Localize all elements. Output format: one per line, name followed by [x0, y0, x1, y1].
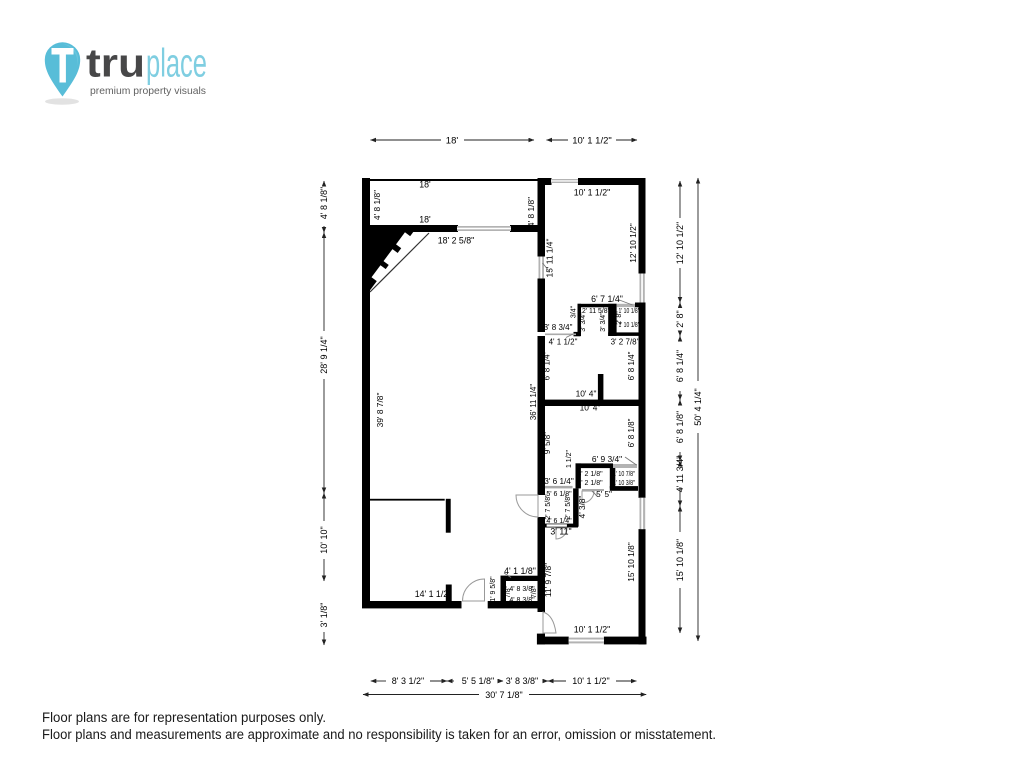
svg-text:4' 3/8": 4' 3/8": [578, 496, 587, 519]
svg-text:1' 10 1/8": 1' 10 1/8": [619, 322, 640, 329]
svg-text:10' 4": 10' 4": [580, 403, 601, 413]
svg-text:3' 6 1/4": 3' 6 1/4": [544, 477, 574, 486]
svg-text:6' 9 3/4": 6' 9 3/4": [592, 454, 622, 464]
svg-text:3' 11": 3' 11": [550, 527, 571, 537]
svg-text:6' 7 1/4": 6' 7 1/4": [591, 294, 623, 304]
svg-text:15' 11 1/4": 15' 11 1/4": [545, 239, 555, 278]
svg-text:15' 10 1/8": 15' 10 1/8": [675, 539, 685, 581]
svg-text:7/8": 7/8": [531, 585, 538, 598]
svg-text:11' 9 7/8": 11' 9 7/8": [543, 563, 553, 597]
svg-text:6' 8 1/4": 6' 8 1/4": [675, 350, 685, 382]
svg-text:4' 8 1/8": 4' 8 1/8": [319, 187, 329, 219]
svg-text:3' 2 7/8": 3' 2 7/8": [611, 338, 640, 347]
svg-text:6' 8 1/8": 6' 8 1/8": [675, 411, 685, 443]
svg-text:10' 4": 10' 4": [576, 389, 597, 399]
svg-text:2' 7 5/8": 2' 7 5/8": [545, 494, 552, 520]
svg-text:3/4": 3/4": [571, 305, 578, 318]
svg-text:7/8": 7/8": [505, 585, 512, 598]
svg-text:3' 3/4": 3' 3/4": [600, 312, 607, 332]
svg-text:4' 6 1/4": 4' 6 1/4": [546, 518, 572, 525]
svg-text:4' 1 1/2": 4' 1 1/2": [549, 338, 578, 347]
svg-text:6' 8 1/4": 6' 8 1/4": [627, 351, 636, 380]
svg-text:1' 10 1/8": 1' 10 1/8": [619, 308, 640, 315]
svg-text:5' 5 1/8": 5' 5 1/8": [462, 676, 494, 686]
svg-text:18': 18': [419, 215, 431, 225]
svg-text:6' 8 1/4": 6' 8 1/4": [543, 351, 552, 380]
svg-text:1' 2 1/8": 1' 2 1/8": [577, 480, 603, 487]
svg-text:1' 10 7/8": 1' 10 7/8": [613, 471, 635, 478]
svg-text:10' 1 1/2": 10' 1 1/2": [574, 625, 611, 635]
svg-text:4' 8 1/8": 4' 8 1/8": [526, 197, 536, 227]
svg-text:2' 8": 2' 8": [675, 310, 685, 327]
svg-text:10' 1 1/2": 10' 1 1/2": [574, 188, 611, 198]
svg-text:3' 8 3/4": 3' 8 3/4": [544, 323, 573, 332]
svg-text:18': 18': [446, 136, 459, 147]
svg-text:12' 10 1/2": 12' 10 1/2": [675, 222, 685, 264]
svg-text:tru: tru: [86, 42, 145, 86]
svg-text:4' 11 3/4": 4' 11 3/4": [675, 456, 685, 493]
svg-text:1' 10 3/8": 1' 10 3/8": [613, 480, 635, 487]
svg-text:18': 18': [419, 180, 431, 190]
svg-text:place: place: [146, 42, 207, 86]
svg-text:39' 8 7/8": 39' 8 7/8": [375, 393, 385, 428]
svg-text:4' 8 1/8": 4' 8 1/8": [372, 190, 382, 220]
svg-text:9' 5/8": 9' 5/8": [543, 432, 552, 454]
svg-text:8' 3 1/2": 8' 3 1/2": [392, 676, 424, 686]
svg-text:18' 2 5/8": 18' 2 5/8": [438, 236, 475, 246]
svg-text:12' 10 1/2": 12' 10 1/2": [628, 223, 638, 263]
svg-text:5' 5": 5' 5": [596, 490, 612, 499]
svg-text:2' 7 5/8": 2' 7 5/8": [565, 494, 572, 520]
svg-text:3' 2 1/8": 3' 2 1/8": [577, 471, 603, 478]
svg-text:36' 11 1/4": 36' 11 1/4": [529, 384, 538, 420]
svg-text:4' 1 1/8": 4' 1 1/8": [504, 566, 536, 576]
svg-text:6' 8 1/8": 6' 8 1/8": [627, 418, 636, 447]
svg-text:15' 10 1/8": 15' 10 1/8": [626, 542, 636, 582]
svg-text:3' 8 3/8": 3' 8 3/8": [506, 676, 538, 686]
svg-text:10' 1 1/2": 10' 1 1/2": [572, 136, 612, 147]
svg-text:50' 4 1/4": 50' 4 1/4": [693, 388, 703, 425]
svg-text:30' 7 1/8": 30' 7 1/8": [485, 690, 522, 700]
svg-text:1 1/2": 1 1/2": [566, 449, 573, 468]
svg-text:Floor plans and measurements a: Floor plans and measurements are approxi…: [42, 727, 716, 742]
svg-text:1' 9 5/8": 1' 9 5/8": [490, 576, 497, 602]
svg-text:10' 1 1/2": 10' 1 1/2": [572, 676, 609, 686]
svg-text:14' 1 1/2": 14' 1 1/2": [415, 589, 452, 599]
svg-text:10' 10": 10' 10": [319, 526, 329, 553]
svg-text:Floor plans are for representa: Floor plans are for representation purpo…: [42, 710, 326, 725]
svg-text:3' 1/8": 3' 1/8": [319, 603, 329, 628]
svg-text:28' 9 1/4": 28' 9 1/4": [319, 336, 329, 373]
svg-text:premium property visuals: premium property visuals: [90, 86, 206, 97]
svg-text:3' 3/4": 3' 3/4": [580, 312, 587, 332]
